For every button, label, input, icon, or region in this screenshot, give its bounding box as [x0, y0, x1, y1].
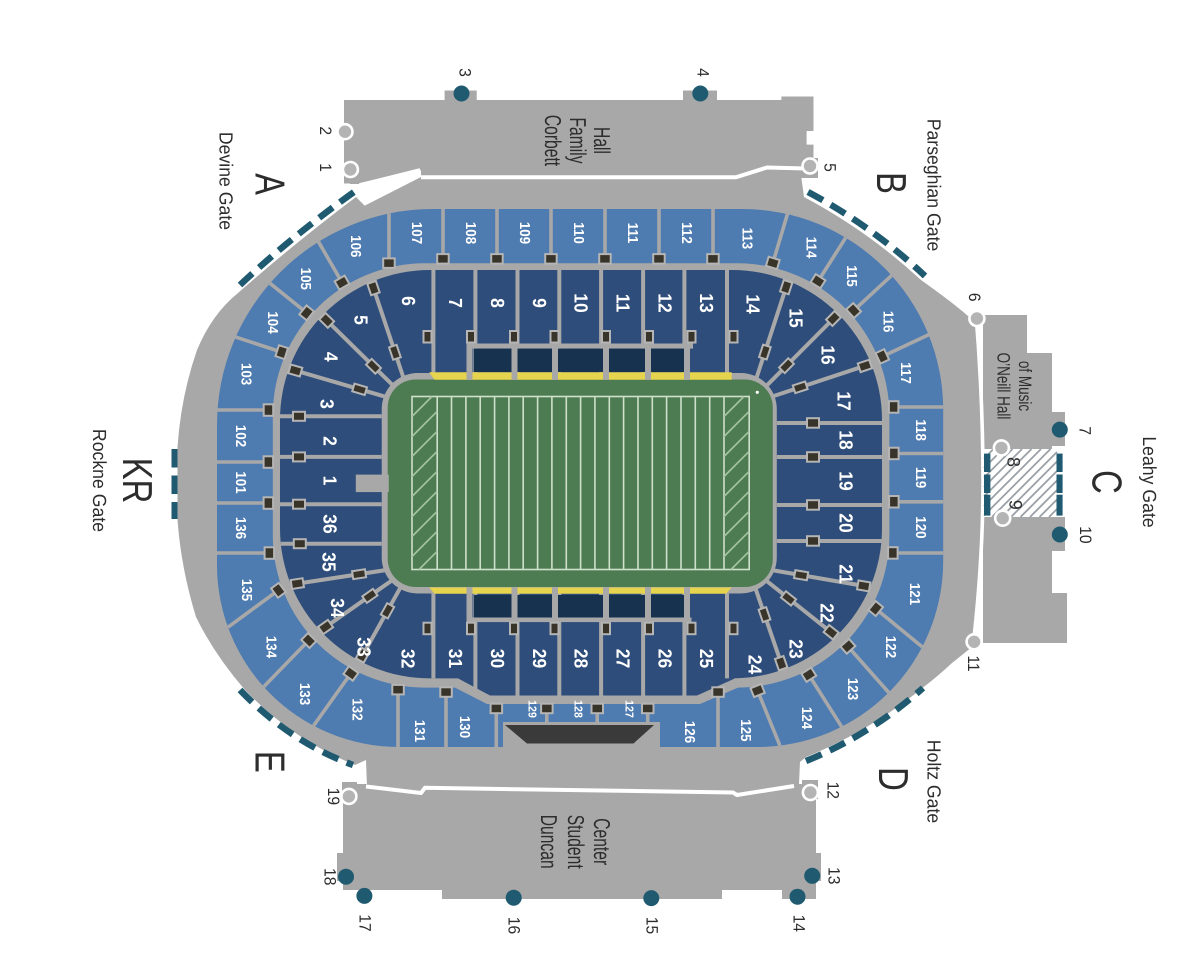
svg-text:16: 16 — [505, 917, 523, 934]
svg-text:9: 9 — [1005, 500, 1025, 510]
svg-text:31: 31 — [444, 649, 465, 669]
svg-text:Holtz Gate: Holtz Gate — [923, 740, 944, 823]
svg-text:14: 14 — [742, 294, 763, 314]
svg-text:Student: Student — [563, 815, 589, 869]
svg-text:6: 6 — [397, 296, 418, 306]
svg-text:5: 5 — [350, 315, 371, 325]
svg-text:11: 11 — [964, 655, 982, 671]
svg-text:136: 136 — [232, 517, 248, 539]
svg-text:115: 115 — [843, 265, 859, 287]
svg-text:Duncan: Duncan — [536, 815, 562, 869]
svg-text:122: 122 — [882, 636, 898, 658]
svg-text:130: 130 — [456, 716, 472, 738]
svg-text:7: 7 — [1075, 426, 1093, 435]
svg-text:7: 7 — [444, 298, 465, 308]
svg-text:124: 124 — [798, 707, 814, 729]
svg-text:4: 4 — [320, 352, 341, 362]
svg-text:10: 10 — [570, 293, 591, 312]
svg-text:108: 108 — [462, 222, 478, 244]
svg-text:9: 9 — [528, 298, 549, 308]
svg-text:Family: Family — [565, 117, 591, 163]
svg-text:Parseghian Gate: Parseghian Gate — [923, 119, 944, 252]
svg-text:106: 106 — [347, 235, 363, 257]
svg-text:34: 34 — [326, 598, 347, 618]
svg-text:14: 14 — [789, 915, 807, 932]
svg-text:12: 12 — [823, 782, 841, 799]
svg-text:101: 101 — [232, 471, 248, 493]
svg-text:24: 24 — [744, 655, 765, 675]
svg-text:118: 118 — [912, 419, 928, 441]
svg-text:121: 121 — [906, 583, 922, 605]
svg-text:29: 29 — [528, 649, 549, 668]
svg-text:E: E — [246, 751, 293, 773]
svg-text:13: 13 — [695, 293, 716, 312]
svg-text:16: 16 — [817, 345, 838, 364]
svg-text:36: 36 — [319, 514, 340, 533]
svg-text:17: 17 — [355, 914, 373, 931]
svg-text:102: 102 — [232, 425, 248, 447]
svg-text:Hall: Hall — [589, 127, 615, 154]
svg-text:26: 26 — [653, 649, 674, 668]
svg-text:126: 126 — [681, 721, 697, 743]
svg-text:18: 18 — [835, 430, 856, 449]
svg-text:114: 114 — [802, 237, 818, 259]
svg-text:125: 125 — [737, 719, 753, 741]
svg-text:B: B — [868, 172, 915, 194]
svg-text:3: 3 — [316, 399, 337, 409]
svg-text:32: 32 — [396, 649, 417, 668]
svg-text:O’Neill Hall: O’Neill Hall — [994, 353, 1014, 420]
svg-text:103: 103 — [238, 363, 254, 385]
svg-text:104: 104 — [264, 311, 280, 333]
svg-text:127: 127 — [622, 700, 634, 718]
svg-text:27: 27 — [612, 649, 633, 668]
svg-text:105: 105 — [297, 268, 313, 290]
svg-text:113: 113 — [738, 228, 754, 250]
svg-text:15: 15 — [642, 917, 660, 934]
svg-text:3: 3 — [456, 68, 474, 77]
svg-text:23: 23 — [785, 639, 806, 658]
svg-text:21: 21 — [835, 564, 856, 584]
svg-text:33: 33 — [353, 637, 374, 656]
svg-text:5: 5 — [821, 163, 839, 172]
svg-text:123: 123 — [844, 678, 860, 700]
svg-text:1: 1 — [319, 476, 340, 486]
svg-text:Center: Center — [589, 818, 615, 865]
svg-text:C: C — [1083, 470, 1130, 494]
svg-text:12: 12 — [653, 293, 674, 312]
svg-text:132: 132 — [349, 698, 365, 720]
svg-text:2: 2 — [319, 436, 340, 446]
svg-text:4: 4 — [694, 68, 712, 77]
svg-text:129: 129 — [526, 700, 538, 718]
svg-text:19: 19 — [324, 788, 342, 805]
svg-text:Corbett: Corbett — [540, 115, 566, 167]
svg-text:18: 18 — [320, 868, 338, 885]
svg-text:D: D — [870, 767, 917, 791]
svg-text:Leahy Gate: Leahy Gate — [1138, 436, 1159, 527]
svg-text:A: A — [247, 173, 294, 195]
svg-text:120: 120 — [912, 516, 928, 538]
svg-text:19: 19 — [835, 471, 856, 490]
svg-text:1: 1 — [316, 163, 334, 172]
svg-text:25: 25 — [695, 649, 716, 669]
svg-text:11: 11 — [612, 294, 633, 313]
svg-text:8: 8 — [1004, 457, 1024, 467]
svg-text:35: 35 — [318, 552, 339, 572]
svg-text:Rockne Gate: Rockne Gate — [88, 429, 109, 532]
svg-text:116: 116 — [880, 311, 896, 333]
svg-text:133: 133 — [296, 683, 312, 705]
svg-text:111: 111 — [624, 223, 640, 244]
svg-text:112: 112 — [678, 222, 694, 244]
svg-text:134: 134 — [263, 636, 279, 658]
svg-text:131: 131 — [411, 720, 427, 742]
svg-text:135: 135 — [238, 579, 254, 601]
svg-text:17: 17 — [833, 391, 854, 410]
svg-text:of Music: of Music — [1015, 361, 1035, 411]
svg-text:107: 107 — [408, 222, 424, 244]
svg-text:15: 15 — [785, 308, 806, 328]
svg-text:28: 28 — [570, 649, 591, 668]
svg-text:13: 13 — [824, 867, 842, 884]
svg-text:KR: KR — [114, 458, 161, 504]
svg-text:30: 30 — [486, 649, 507, 668]
svg-text:20: 20 — [835, 513, 856, 532]
svg-text:128: 128 — [571, 700, 583, 718]
svg-text:109: 109 — [516, 222, 532, 244]
svg-text:117: 117 — [897, 362, 913, 384]
svg-text:110: 110 — [570, 222, 586, 244]
svg-text:Devine Gate: Devine Gate — [215, 132, 236, 230]
svg-text:22: 22 — [816, 603, 837, 622]
svg-text:8: 8 — [486, 298, 507, 308]
svg-text:119: 119 — [912, 467, 928, 489]
svg-text:2: 2 — [316, 126, 334, 135]
svg-text:10: 10 — [1076, 526, 1094, 543]
svg-text:6: 6 — [965, 293, 983, 302]
